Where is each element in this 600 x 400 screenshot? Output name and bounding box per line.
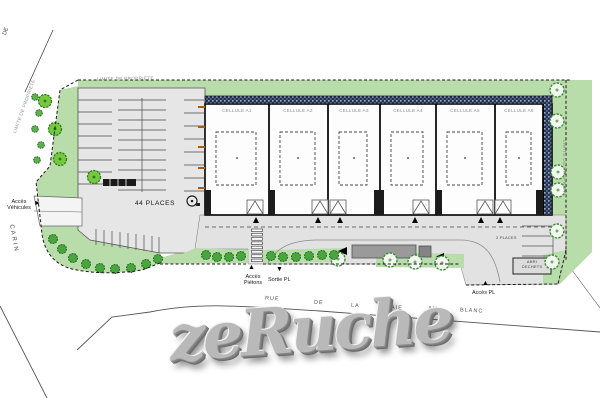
access-pedestrians-label: Accès Piétons [238, 274, 268, 287]
cell-label-6: CELLULE A6 [495, 108, 543, 113]
waste-shelter-line2: DECHETS [513, 265, 551, 270]
parking-count-label: 44 PLACES [120, 200, 190, 207]
cell-label-1: CELLULE A1 [213, 108, 261, 113]
cell-label-3: CELLULE A3 [330, 108, 378, 113]
arrow-up-pl-icon: ▲ [482, 280, 489, 288]
entry-pl-label: Accès PL [472, 290, 495, 296]
arrow-down-exit-icon: ▼ [276, 266, 283, 274]
cell-label-4: CELLULE A4 [384, 108, 432, 113]
street-word-au: AU [428, 306, 438, 313]
site-plan-canvas [0, 0, 600, 400]
access-vehicles-label: Accès Véhicules [2, 199, 36, 212]
street-word-haie: HAIE [386, 305, 403, 312]
waste-shelter-label: ABRI DECHETS [513, 260, 551, 269]
exit-pl-label: Sortie PL [268, 277, 291, 283]
site-plan-page: LIMITE DE PROPRIETE LIMITE DE PROPRIETE … [0, 0, 600, 400]
cell-label-2: CELLULE A2 [274, 108, 322, 113]
street-word-rue: RUE [265, 296, 280, 303]
arrow-right-icon: ► [34, 200, 41, 208]
boundary-label-top: LIMITE DE PROPRIETE [97, 76, 154, 82]
bike-rack [103, 179, 136, 186]
access-vehicles-line2: Véhicules [2, 205, 36, 211]
insulation-band-right [543, 96, 552, 215]
access-pedestrians-line2: Piétons [238, 280, 268, 286]
street-word-de: DE [314, 300, 324, 307]
boundary-label-right: LIMITE DE PROPRIETE [562, 140, 567, 197]
insulation-band-top [205, 96, 552, 104]
cell-label-5: CELLULE A5 [441, 108, 489, 113]
arrow-up-pedestrians-icon: ▲ [248, 264, 255, 272]
street-word-blanc: BLANC [460, 307, 484, 315]
street-word-la: LA [351, 303, 360, 310]
small-parking-label: 3 PLACES [496, 236, 517, 241]
building [198, 96, 552, 223]
